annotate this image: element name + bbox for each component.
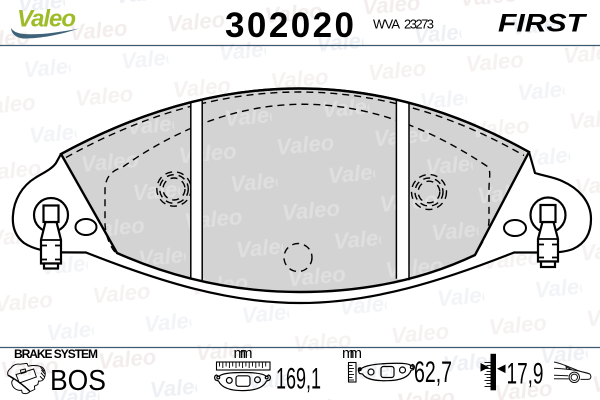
svg-text:mm: mm — [234, 345, 253, 362]
svg-text:62,7: 62,7 — [414, 356, 452, 389]
svg-text:WVA: WVA — [373, 17, 400, 32]
svg-text:17,9: 17,9 — [507, 358, 544, 391]
svg-text:mm: mm — [342, 345, 362, 362]
svg-text:169,1: 169,1 — [276, 363, 321, 396]
svg-text:BOS: BOS — [50, 365, 106, 397]
svg-text:FIRST: FIRST — [498, 10, 588, 38]
svg-text:Valeo: Valeo — [17, 6, 76, 33]
svg-text:BRAKE SYSTEM: BRAKE SYSTEM — [14, 347, 98, 361]
svg-text:23273: 23273 — [404, 17, 434, 32]
